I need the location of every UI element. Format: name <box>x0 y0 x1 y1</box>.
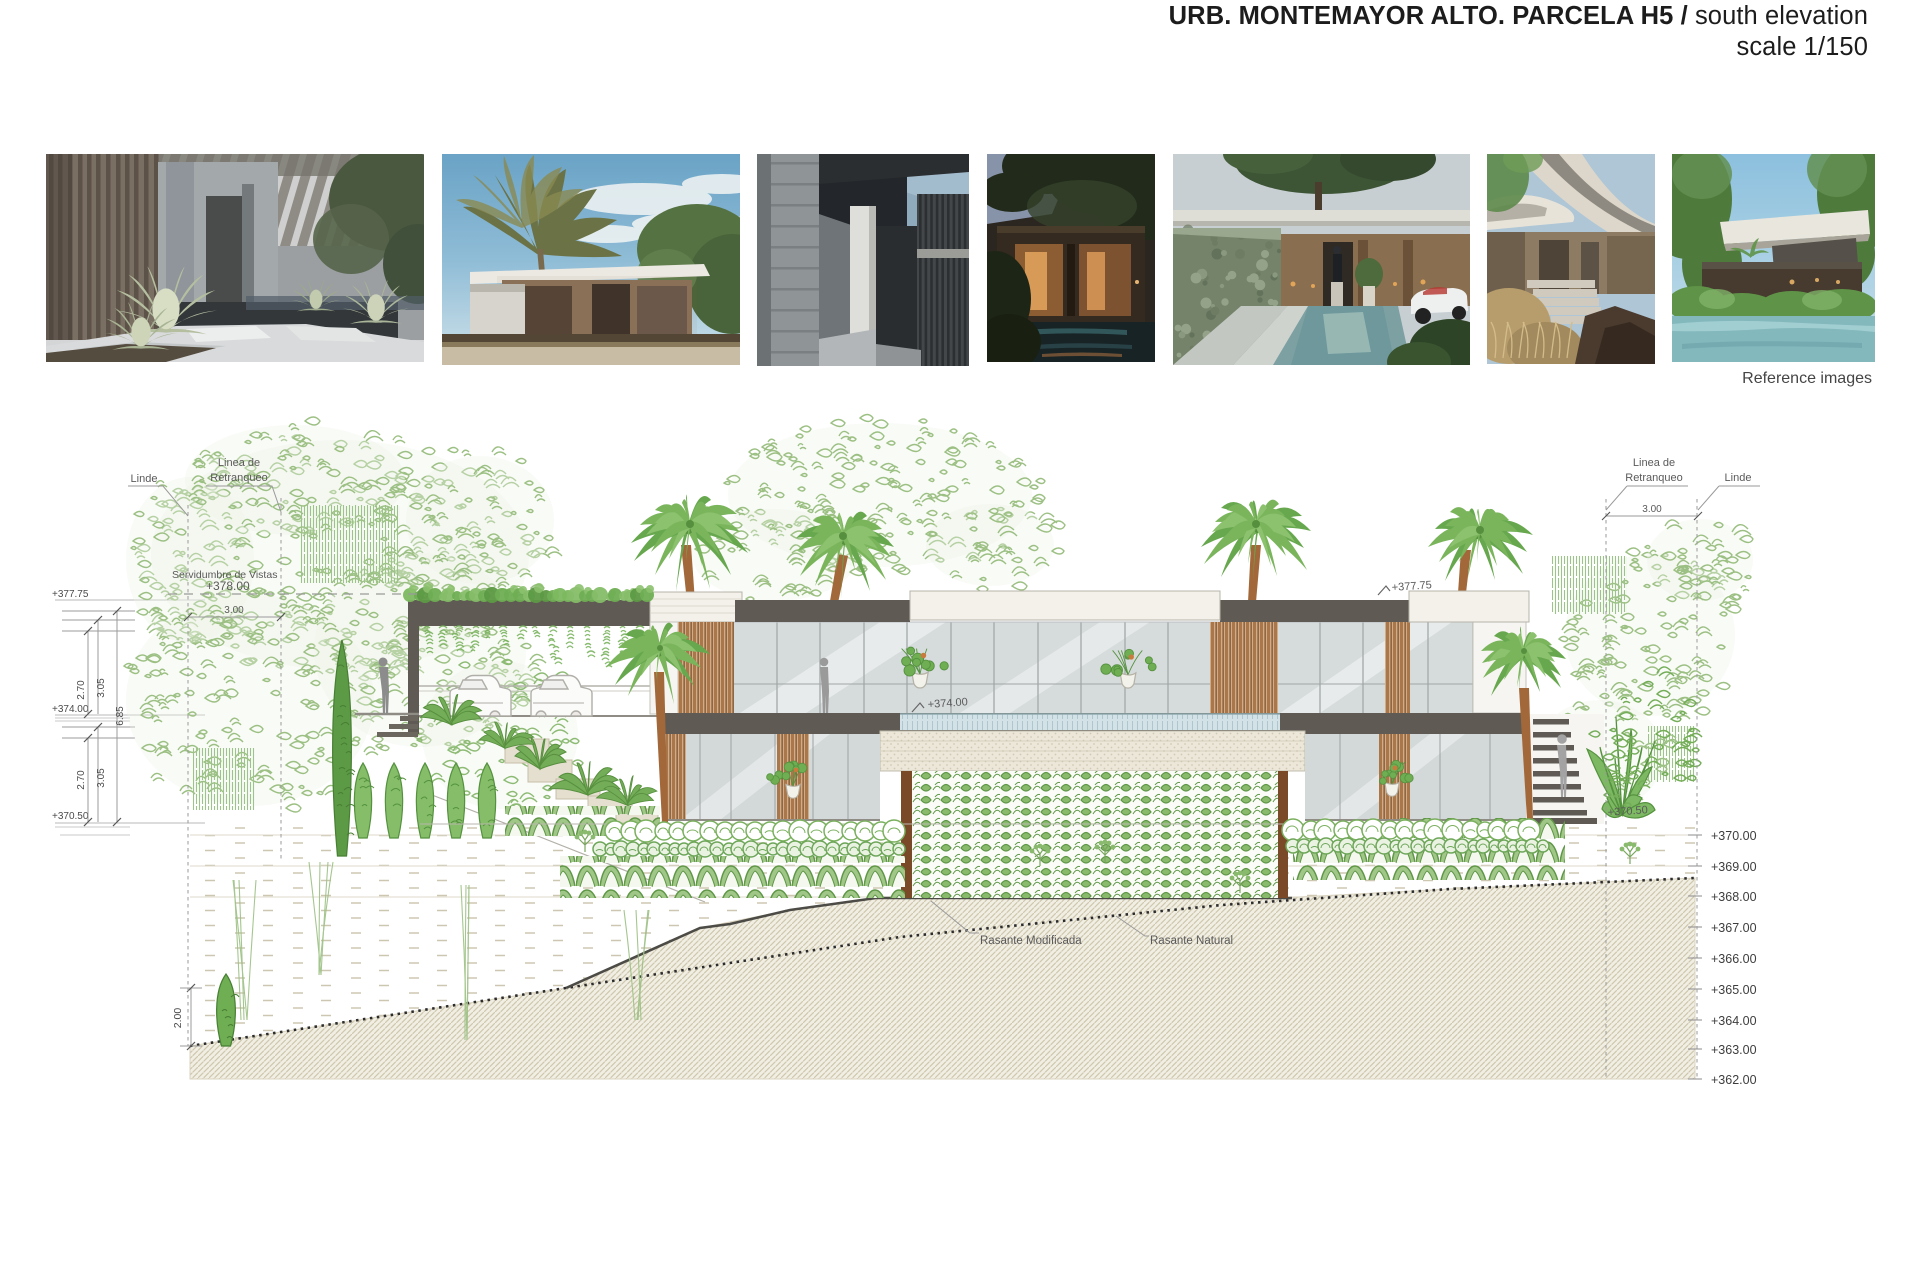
svg-text:2.00: 2.00 <box>172 1008 184 1029</box>
svg-text:Linde: Linde <box>131 473 158 485</box>
svg-text:3.05: 3.05 <box>96 768 107 788</box>
svg-text:+365.00: +365.00 <box>1711 983 1757 997</box>
svg-text:+370.50: +370.50 <box>52 811 89 822</box>
svg-text:+369.00: +369.00 <box>1711 860 1757 874</box>
svg-text:3.00: 3.00 <box>224 605 244 616</box>
svg-text:Linde: Linde <box>1725 472 1752 484</box>
svg-text:+368.00: +368.00 <box>1711 890 1757 904</box>
svg-text:+378.00: +378.00 <box>206 579 250 593</box>
svg-text:6.85: 6.85 <box>115 706 126 726</box>
svg-text:+364.00: +364.00 <box>1711 1014 1757 1028</box>
svg-text:+367.00: +367.00 <box>1711 921 1757 935</box>
svg-text:Linea de: Linea de <box>1633 457 1675 469</box>
svg-text:Retranqueo: Retranqueo <box>1625 472 1683 484</box>
svg-text:Linea de: Linea de <box>218 457 260 469</box>
svg-text:Rasante Modificada: Rasante Modificada <box>980 935 1082 947</box>
svg-text:2.70: 2.70 <box>76 680 87 700</box>
svg-text:+363.00: +363.00 <box>1711 1043 1757 1057</box>
svg-text:+377.75: +377.75 <box>52 589 89 600</box>
svg-text:3.05: 3.05 <box>96 678 107 698</box>
svg-text:Rasante Natural: Rasante Natural <box>1150 935 1233 947</box>
svg-text:+362.00: +362.00 <box>1711 1073 1757 1087</box>
svg-text:2.70: 2.70 <box>76 770 87 790</box>
svg-text:Retranqueo: Retranqueo <box>210 472 268 484</box>
svg-text:+370.00: +370.00 <box>1711 829 1757 843</box>
svg-text:+366.00: +366.00 <box>1711 952 1757 966</box>
svg-text:3.00: 3.00 <box>1642 504 1662 515</box>
svg-text:+374.00: +374.00 <box>52 704 89 715</box>
